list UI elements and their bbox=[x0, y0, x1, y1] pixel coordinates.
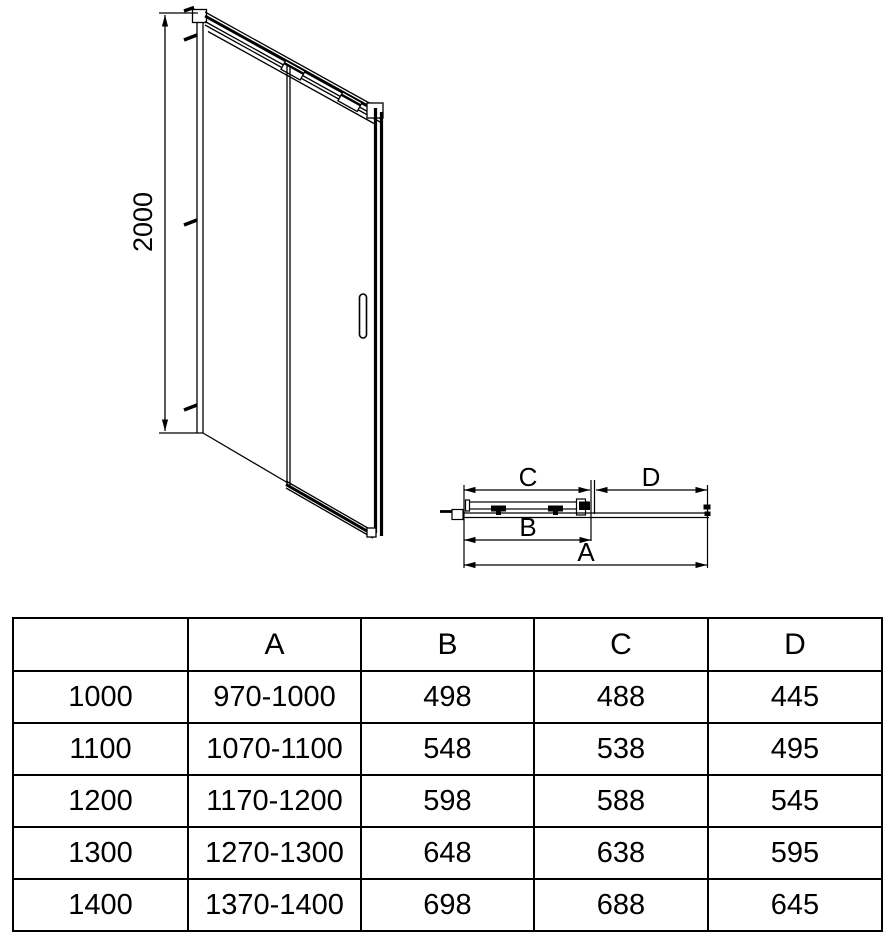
bottom-rail bbox=[286, 481, 376, 538]
right-frame-profile bbox=[376, 108, 382, 536]
table-cell: 548 bbox=[361, 723, 534, 775]
column-header-d: D bbox=[708, 618, 882, 671]
column-header-a: A bbox=[188, 618, 361, 671]
table-cell: 598 bbox=[361, 775, 534, 827]
table-cell: 488 bbox=[534, 671, 708, 723]
table-cell: 498 bbox=[361, 671, 534, 723]
table-cell: 538 bbox=[534, 723, 708, 775]
table-cell: 1000 bbox=[13, 671, 188, 723]
technical-drawing: 2000 bbox=[0, 0, 893, 610]
table-cell: 1170-1200 bbox=[188, 775, 361, 827]
height-dimension-label: 2000 bbox=[128, 192, 158, 252]
column-header-c: C bbox=[534, 618, 708, 671]
table-cell: 588 bbox=[534, 775, 708, 827]
table-cell: 698 bbox=[361, 879, 534, 931]
front-view: 2000 bbox=[128, 8, 383, 539]
table-cell: 595 bbox=[708, 827, 882, 879]
table-row: 1000 970-1000 498 488 445 bbox=[13, 671, 882, 723]
glass-divider bbox=[287, 64, 290, 486]
column-header-size bbox=[13, 618, 188, 671]
table-row: 1200 1170-1200 598 588 545 bbox=[13, 775, 882, 827]
door-handle bbox=[360, 294, 367, 338]
dim-d-label: D bbox=[642, 462, 661, 492]
table-cell: 495 bbox=[708, 723, 882, 775]
dim-a-label: A bbox=[577, 537, 595, 567]
table-cell: 688 bbox=[534, 879, 708, 931]
table-row: 1400 1370-1400 698 688 645 bbox=[13, 879, 882, 931]
dim-c-label: C bbox=[519, 462, 538, 492]
wall-brackets bbox=[184, 8, 197, 411]
table-row: 1100 1070-1100 548 538 495 bbox=[13, 723, 882, 775]
header-row: A B C D bbox=[13, 618, 882, 671]
table-row: 1300 1270-1300 648 638 595 bbox=[13, 827, 882, 879]
dim-b-label: B bbox=[519, 512, 536, 542]
table-cell: 645 bbox=[708, 879, 882, 931]
table-cell: 1400 bbox=[13, 879, 188, 931]
table-cell: 1370-1400 bbox=[188, 879, 361, 931]
table-cell: 445 bbox=[708, 671, 882, 723]
table-cell: 970-1000 bbox=[188, 671, 361, 723]
table-cell: 648 bbox=[361, 827, 534, 879]
top-section-view: C D B A bbox=[440, 462, 711, 568]
table-cell: 1100 bbox=[13, 723, 188, 775]
table-cell: 1200 bbox=[13, 775, 188, 827]
table-cell: 545 bbox=[708, 775, 882, 827]
column-header-b: B bbox=[361, 618, 534, 671]
table-cell: 1300 bbox=[13, 827, 188, 879]
table-cell: 638 bbox=[534, 827, 708, 879]
size-table: A B C D 1000 970-1000 498 488 445 1100 1… bbox=[12, 617, 883, 932]
table-cell: 1270-1300 bbox=[188, 827, 361, 879]
table-cell: 1070-1100 bbox=[188, 723, 361, 775]
